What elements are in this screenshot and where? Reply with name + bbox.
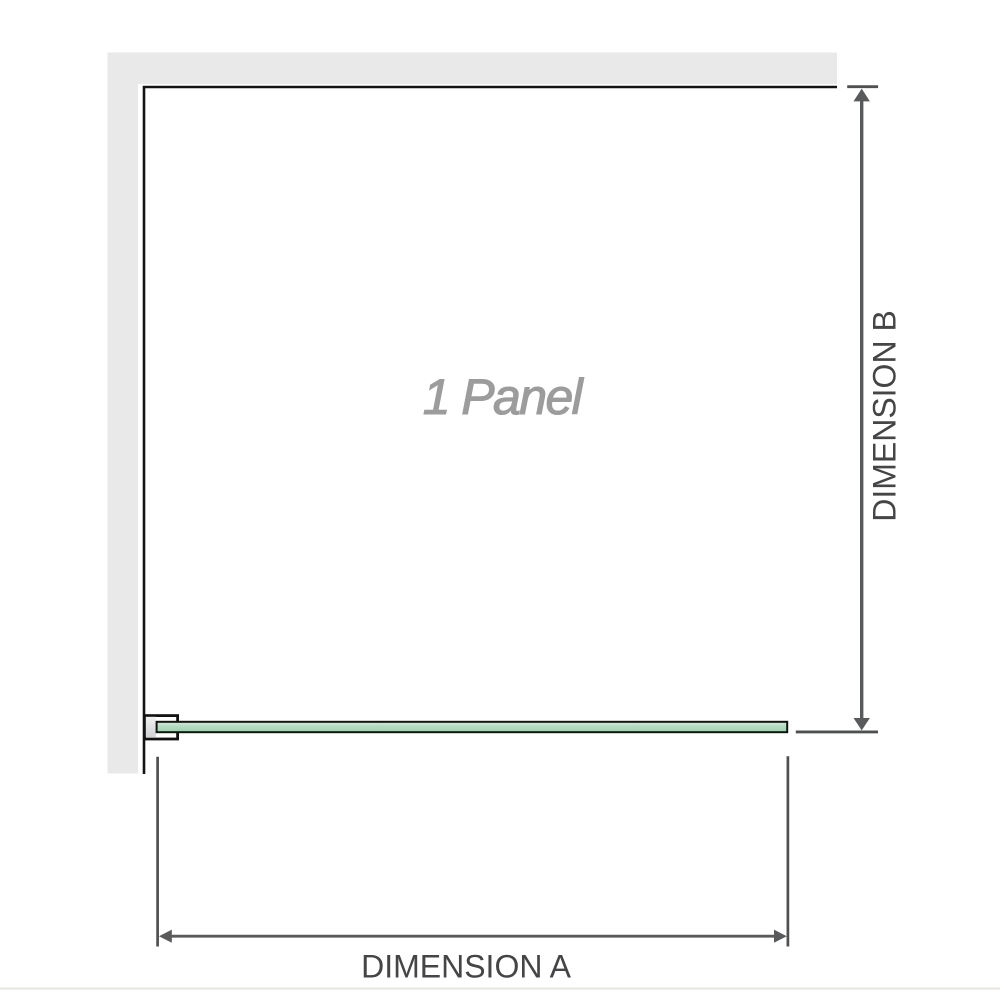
svg-text:DIMENSION A: DIMENSION A: [361, 949, 571, 985]
svg-text:1 Panel: 1 Panel: [423, 369, 585, 425]
svg-text:DIMENSION B: DIMENSION B: [867, 310, 903, 522]
